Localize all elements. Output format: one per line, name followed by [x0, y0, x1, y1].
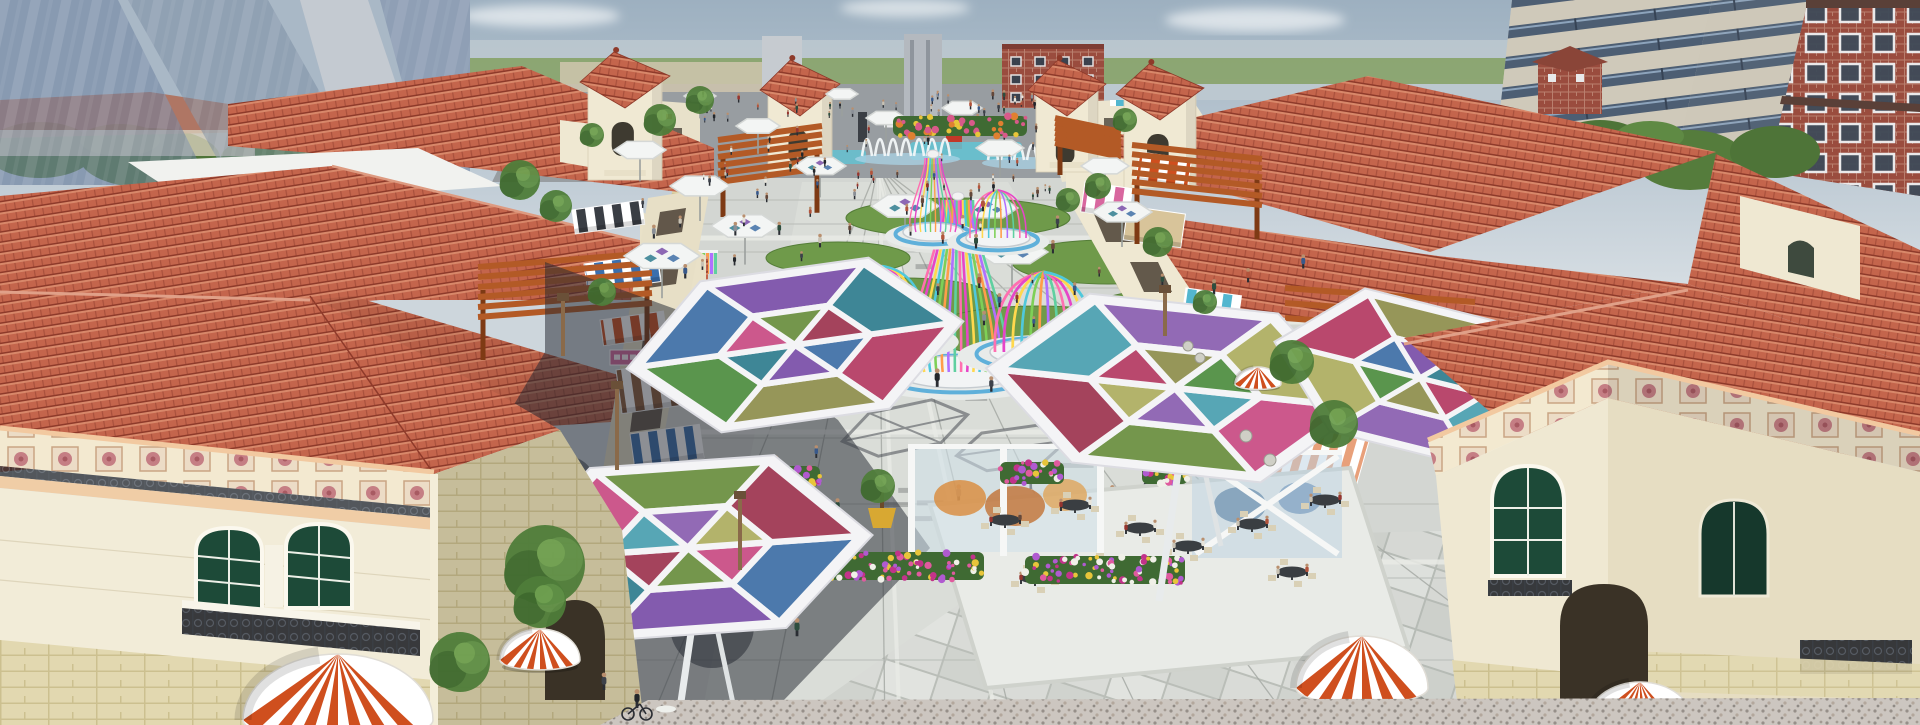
aggregate-paving-band: [600, 698, 1920, 725]
arched-window: [1700, 500, 1768, 596]
flower-bed: [998, 459, 1064, 486]
bollard: [1264, 454, 1276, 466]
arched-window: [286, 524, 352, 608]
arched-window: [1492, 466, 1564, 576]
iron-balconet: [1488, 580, 1572, 596]
right-corner-building: [1404, 284, 1920, 725]
distant-tower-2: [904, 34, 942, 124]
monument-pylon: [858, 112, 867, 142]
bollard: [1183, 341, 1193, 351]
bollard: [1195, 353, 1205, 363]
flower-bed: [893, 112, 1027, 139]
arched-window: [196, 528, 262, 612]
bollard: [1240, 430, 1252, 442]
plaza-rendering: [0, 0, 1920, 725]
rendering-canvas: [0, 0, 1920, 725]
